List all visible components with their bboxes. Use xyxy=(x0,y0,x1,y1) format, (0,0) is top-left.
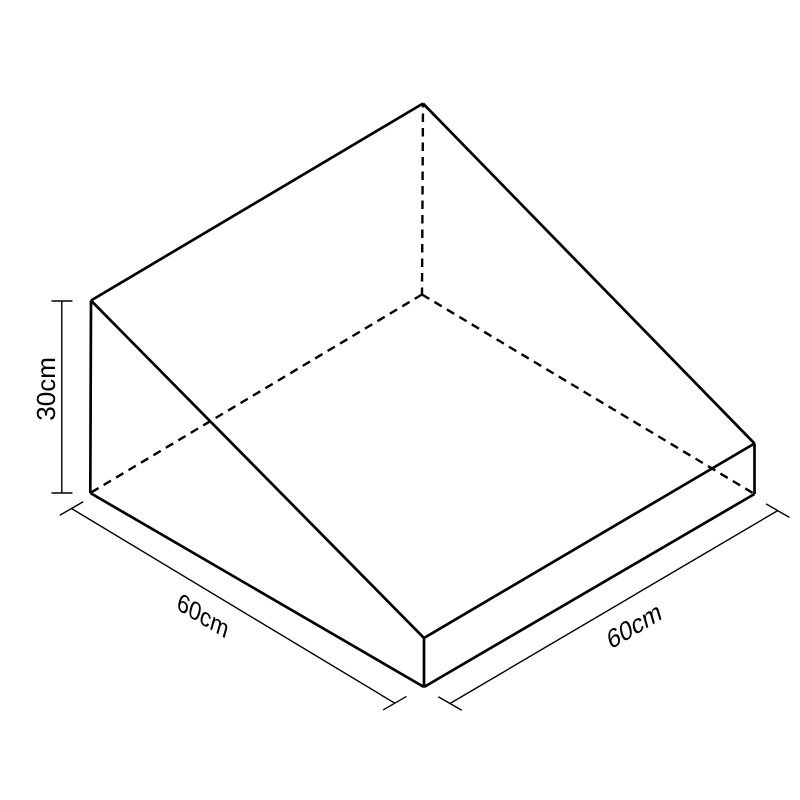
svg-text:30cm: 30cm xyxy=(31,357,61,421)
